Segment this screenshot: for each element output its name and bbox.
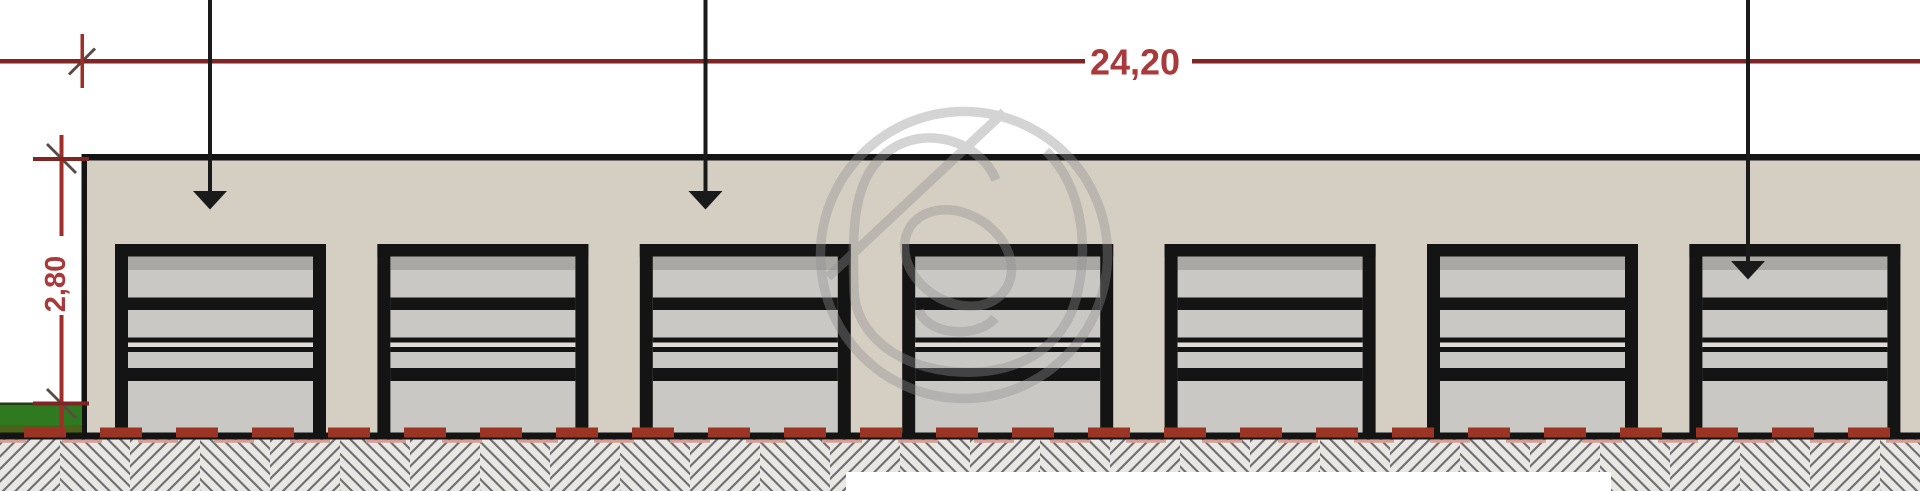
svg-text:24,20: 24,20 <box>1090 42 1180 83</box>
svg-text:2,80: 2,80 <box>40 256 72 312</box>
